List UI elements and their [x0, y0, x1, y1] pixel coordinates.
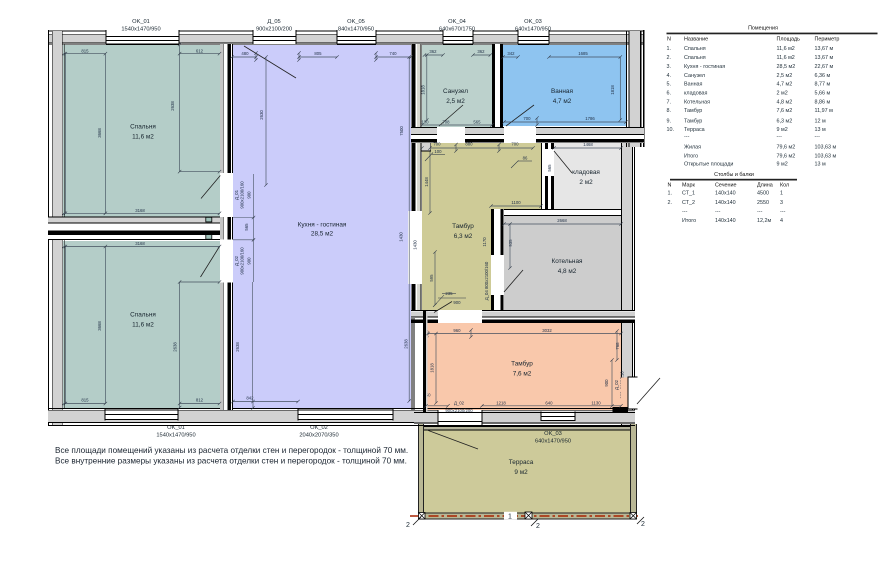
svg-text:4,7 м2: 4,7 м2: [553, 98, 572, 105]
svg-text:2638: 2638: [404, 339, 409, 349]
svg-text:8,86 м: 8,86 м: [815, 99, 831, 105]
svg-text:3.: 3.: [667, 64, 672, 70]
svg-text:Д_02: Д_02: [614, 379, 619, 390]
svg-text:Котельная: Котельная: [552, 258, 583, 265]
svg-text:935: 935: [508, 239, 513, 247]
svg-text:12,2м: 12,2м: [757, 218, 771, 224]
svg-text:Сечение: Сечение: [715, 182, 737, 188]
svg-text:28,5 м2: 28,5 м2: [311, 231, 334, 238]
svg-text:640: 640: [545, 400, 553, 405]
svg-text:100: 100: [434, 149, 442, 154]
svg-text:Кухня - гостиная: Кухня - гостиная: [298, 222, 347, 229]
svg-text:2.: 2.: [667, 55, 672, 61]
svg-text:960: 960: [453, 328, 461, 333]
svg-text:Марк: Марк: [682, 182, 696, 188]
svg-text:Спальня: Спальня: [684, 55, 706, 61]
svg-text:1170: 1170: [482, 237, 487, 247]
svg-text:9 м2: 9 м2: [514, 469, 528, 476]
svg-text:3168: 3168: [135, 241, 145, 246]
svg-text:700: 700: [433, 142, 441, 147]
svg-text:6.: 6.: [667, 91, 672, 97]
svg-text:565: 565: [473, 120, 481, 125]
svg-text:3168: 3168: [135, 208, 145, 213]
svg-text:2630: 2630: [259, 110, 264, 120]
svg-text:N: N: [667, 37, 671, 43]
svg-text:2: 2: [641, 521, 645, 528]
svg-text:Длина: Длина: [757, 182, 773, 188]
svg-text:N: N: [668, 182, 672, 188]
svg-text:Д_04 800x2100/160: Д_04 800x2100/160: [484, 261, 489, 300]
svg-text:Спальня: Спальня: [130, 124, 156, 131]
svg-text:2638: 2638: [235, 342, 240, 352]
svg-text:8.: 8.: [667, 108, 672, 114]
svg-text:7,6 м2: 7,6 м2: [513, 371, 532, 378]
svg-text:103,63 м: 103,63 м: [815, 144, 837, 150]
svg-text:Кол: Кол: [780, 182, 789, 188]
svg-text:1540x1470/950: 1540x1470/950: [156, 433, 195, 439]
svg-text:OK_05: OK_05: [347, 19, 365, 25]
svg-text:1: 1: [780, 190, 783, 196]
svg-text:362: 362: [477, 49, 485, 54]
svg-text:11,6 м2: 11,6 м2: [132, 322, 154, 329]
svg-text:Спальня: Спальня: [684, 46, 706, 52]
svg-text:1786: 1786: [585, 116, 595, 121]
svg-text:1540x1470/950: 1540x1470/950: [121, 27, 160, 33]
svg-text:2668: 2668: [557, 218, 567, 223]
svg-text:900x2100/160: 900x2100/160: [240, 247, 245, 275]
svg-text:2.: 2.: [668, 200, 673, 206]
svg-text:342: 342: [507, 51, 515, 56]
svg-text:768: 768: [615, 342, 620, 350]
svg-text:100: 100: [421, 120, 429, 125]
svg-text:700: 700: [523, 116, 531, 121]
svg-text:---: ---: [757, 209, 763, 215]
svg-text:79,6 м2: 79,6 м2: [777, 144, 796, 150]
svg-text:5.: 5.: [667, 82, 672, 88]
svg-text:Тамбур: Тамбур: [684, 118, 702, 124]
svg-text:842: 842: [246, 396, 254, 401]
svg-text:11,97 м: 11,97 м: [815, 108, 834, 114]
svg-text:СТ_1: СТ_1: [682, 190, 695, 196]
svg-text:565: 565: [547, 164, 552, 172]
svg-text:4.: 4.: [667, 73, 672, 79]
svg-text:362: 362: [429, 49, 437, 54]
svg-text:3668: 3668: [97, 321, 102, 331]
svg-text:Д_05: Д_05: [267, 19, 280, 25]
svg-text:Терраса: Терраса: [684, 127, 705, 133]
svg-text:Помещения: Помещения: [748, 26, 778, 32]
svg-text:OK_01: OK_01: [132, 19, 150, 25]
svg-text:3032: 3032: [542, 328, 552, 333]
svg-text:СТ_2: СТ_2: [682, 200, 695, 206]
svg-text:840x1470/950: 840x1470/950: [338, 27, 374, 33]
svg-text:---: ---: [780, 209, 786, 215]
svg-text:9 м2: 9 м2: [777, 162, 788, 168]
svg-text:880: 880: [465, 142, 473, 147]
svg-text:Ванная: Ванная: [684, 82, 703, 88]
svg-text:Открытые площади: Открытые площади: [684, 162, 733, 168]
svg-text:2,5 м2: 2,5 м2: [446, 98, 465, 105]
svg-text:Периметр: Периметр: [815, 37, 840, 43]
svg-text:Котельная: Котельная: [684, 99, 710, 105]
svg-text:13,67 м: 13,67 м: [815, 55, 834, 61]
svg-text:Кухня - гостиная: Кухня - гостиная: [684, 64, 725, 70]
svg-text:Все внутренние размеры указаны: Все внутренние размеры указаны из расчет…: [55, 457, 407, 466]
svg-text:79,6 м2: 79,6 м2: [777, 154, 796, 160]
svg-text:640x670/1750: 640x670/1750: [439, 27, 475, 33]
svg-text:1468: 1468: [583, 142, 593, 147]
svg-text:565: 565: [244, 223, 249, 231]
svg-text:140x140: 140x140: [715, 190, 736, 196]
svg-text:595: 595: [429, 274, 434, 282]
svg-text:640x1470/950: 640x1470/950: [515, 27, 551, 33]
svg-text:Тамбур: Тамбур: [511, 360, 533, 368]
svg-text:4: 4: [780, 218, 783, 224]
svg-text:900: 900: [453, 300, 461, 305]
svg-text:OK_03: OK_03: [544, 431, 562, 437]
svg-text:708: 708: [442, 120, 450, 125]
svg-text:4500: 4500: [757, 190, 769, 196]
svg-text:4,8 м2: 4,8 м2: [777, 99, 793, 105]
svg-text:1.: 1.: [667, 46, 672, 52]
svg-text:4,8 м2: 4,8 м2: [558, 268, 577, 275]
svg-text:103,63 м: 103,63 м: [815, 154, 837, 160]
svg-text:Все площади помещений указаны: Все площади помещений указаны из расчета…: [55, 446, 408, 455]
svg-text:---: ---: [777, 134, 783, 140]
svg-text:---: ---: [715, 209, 721, 215]
svg-text:Д_02: Д_02: [454, 400, 465, 405]
svg-text:4,7 м2: 4,7 м2: [777, 82, 793, 88]
svg-text:6,3 м2: 6,3 м2: [454, 233, 473, 240]
svg-text:2,5 м2: 2,5 м2: [777, 73, 793, 79]
svg-text:9 м2: 9 м2: [777, 127, 788, 133]
svg-text:3: 3: [780, 200, 783, 206]
svg-text:Название: Название: [684, 37, 708, 43]
svg-text:Тамбур: Тамбур: [452, 222, 474, 230]
svg-text:7500: 7500: [399, 126, 404, 136]
svg-text:1218: 1218: [496, 400, 506, 405]
svg-text:812: 812: [196, 398, 204, 403]
svg-text:2 м2: 2 м2: [579, 179, 593, 186]
svg-text:Итого: Итого: [684, 154, 698, 160]
svg-text:13,67 м: 13,67 м: [815, 46, 834, 52]
svg-text:740: 740: [389, 51, 397, 56]
svg-text:612: 612: [196, 48, 204, 53]
svg-text:Санузел: Санузел: [684, 73, 705, 79]
svg-text:22,67 м: 22,67 м: [815, 64, 834, 70]
svg-text:11,6 м2: 11,6 м2: [777, 46, 795, 52]
svg-text:11,6 м2: 11,6 м2: [777, 55, 795, 61]
svg-text:5,66 м: 5,66 м: [815, 91, 831, 97]
svg-text:1685: 1685: [578, 51, 588, 56]
svg-text:Площадь: Площадь: [777, 37, 801, 43]
svg-text:900: 900: [247, 191, 252, 199]
svg-text:900x2100/160: 900x2100/160: [240, 181, 245, 209]
svg-text:3668: 3668: [97, 128, 102, 138]
svg-text:Столбы и балки: Столбы и балки: [714, 172, 754, 178]
svg-text:6,3 м2: 6,3 м2: [777, 118, 793, 124]
svg-text:2638: 2638: [170, 101, 175, 111]
svg-text:1430: 1430: [413, 240, 418, 250]
svg-text:OK_04: OK_04: [448, 19, 466, 25]
svg-text:1100: 1100: [511, 200, 521, 205]
svg-text:1.: 1.: [668, 190, 673, 196]
svg-text:кладовая: кладовая: [684, 91, 708, 97]
svg-text:480: 480: [241, 51, 249, 56]
svg-text:2040x2070/350: 2040x2070/350: [299, 433, 338, 439]
svg-text:Д_02: Д_02: [234, 255, 239, 266]
svg-text:---: ---: [815, 134, 821, 140]
svg-text:140x140: 140x140: [715, 200, 736, 206]
svg-text:2: 2: [536, 523, 540, 530]
svg-text:10.: 10.: [667, 127, 675, 133]
svg-text:900x2100/200: 900x2100/200: [256, 27, 292, 33]
svg-text:13 м: 13 м: [815, 162, 826, 168]
svg-text:900: 900: [247, 257, 252, 265]
svg-text:1818: 1818: [610, 85, 615, 95]
svg-text:1818: 1818: [430, 363, 435, 373]
svg-text:Санузел: Санузел: [443, 88, 468, 95]
svg-text:2638: 2638: [173, 342, 178, 352]
svg-text:1130: 1130: [591, 400, 601, 405]
svg-text:13 м: 13 м: [815, 127, 826, 133]
svg-text:815: 815: [81, 398, 89, 403]
svg-text:OK_03: OK_03: [524, 19, 542, 25]
svg-text:---: ---: [682, 209, 688, 215]
svg-text:Терраса: Терраса: [509, 459, 534, 466]
svg-text:8,77 м: 8,77 м: [815, 82, 831, 88]
svg-text:1818: 1818: [420, 85, 425, 95]
svg-text:7,6 м2: 7,6 м2: [777, 108, 793, 114]
svg-text:900x2100/200: 900x2100/200: [445, 408, 473, 413]
svg-text:Ванная: Ванная: [551, 88, 573, 95]
svg-text:11,6 м2: 11,6 м2: [132, 134, 154, 141]
svg-text:кладовая: кладовая: [572, 169, 600, 176]
svg-text:9.: 9.: [667, 118, 672, 124]
svg-text:Итого: Итого: [682, 218, 696, 224]
svg-text:2550: 2550: [757, 200, 769, 206]
svg-text:86: 86: [523, 156, 528, 161]
svg-text:Д_01: Д_01: [234, 189, 239, 200]
svg-text:2: 2: [406, 522, 410, 529]
svg-text:2 м2: 2 м2: [777, 91, 788, 97]
svg-text:1: 1: [508, 514, 512, 521]
svg-text:140x140: 140x140: [715, 218, 736, 224]
svg-text:28,5 м2: 28,5 м2: [777, 64, 796, 70]
svg-text:12 м: 12 м: [815, 118, 826, 124]
svg-text:Тамбур: Тамбур: [684, 108, 702, 114]
svg-text:7.: 7.: [667, 99, 672, 105]
svg-text:1430: 1430: [399, 232, 404, 242]
svg-text:805: 805: [314, 51, 322, 56]
svg-text:---: ---: [684, 134, 690, 140]
svg-text:6,36 м: 6,36 м: [815, 73, 831, 79]
svg-text:700: 700: [511, 142, 519, 147]
svg-text:815: 815: [81, 48, 89, 53]
svg-text:640x1470/950: 640x1470/950: [535, 439, 571, 445]
svg-text:Спальня: Спальня: [130, 312, 156, 319]
svg-text:Жилая: Жилая: [684, 144, 701, 150]
svg-text:1448: 1448: [424, 177, 429, 187]
svg-text:900: 900: [604, 379, 609, 387]
